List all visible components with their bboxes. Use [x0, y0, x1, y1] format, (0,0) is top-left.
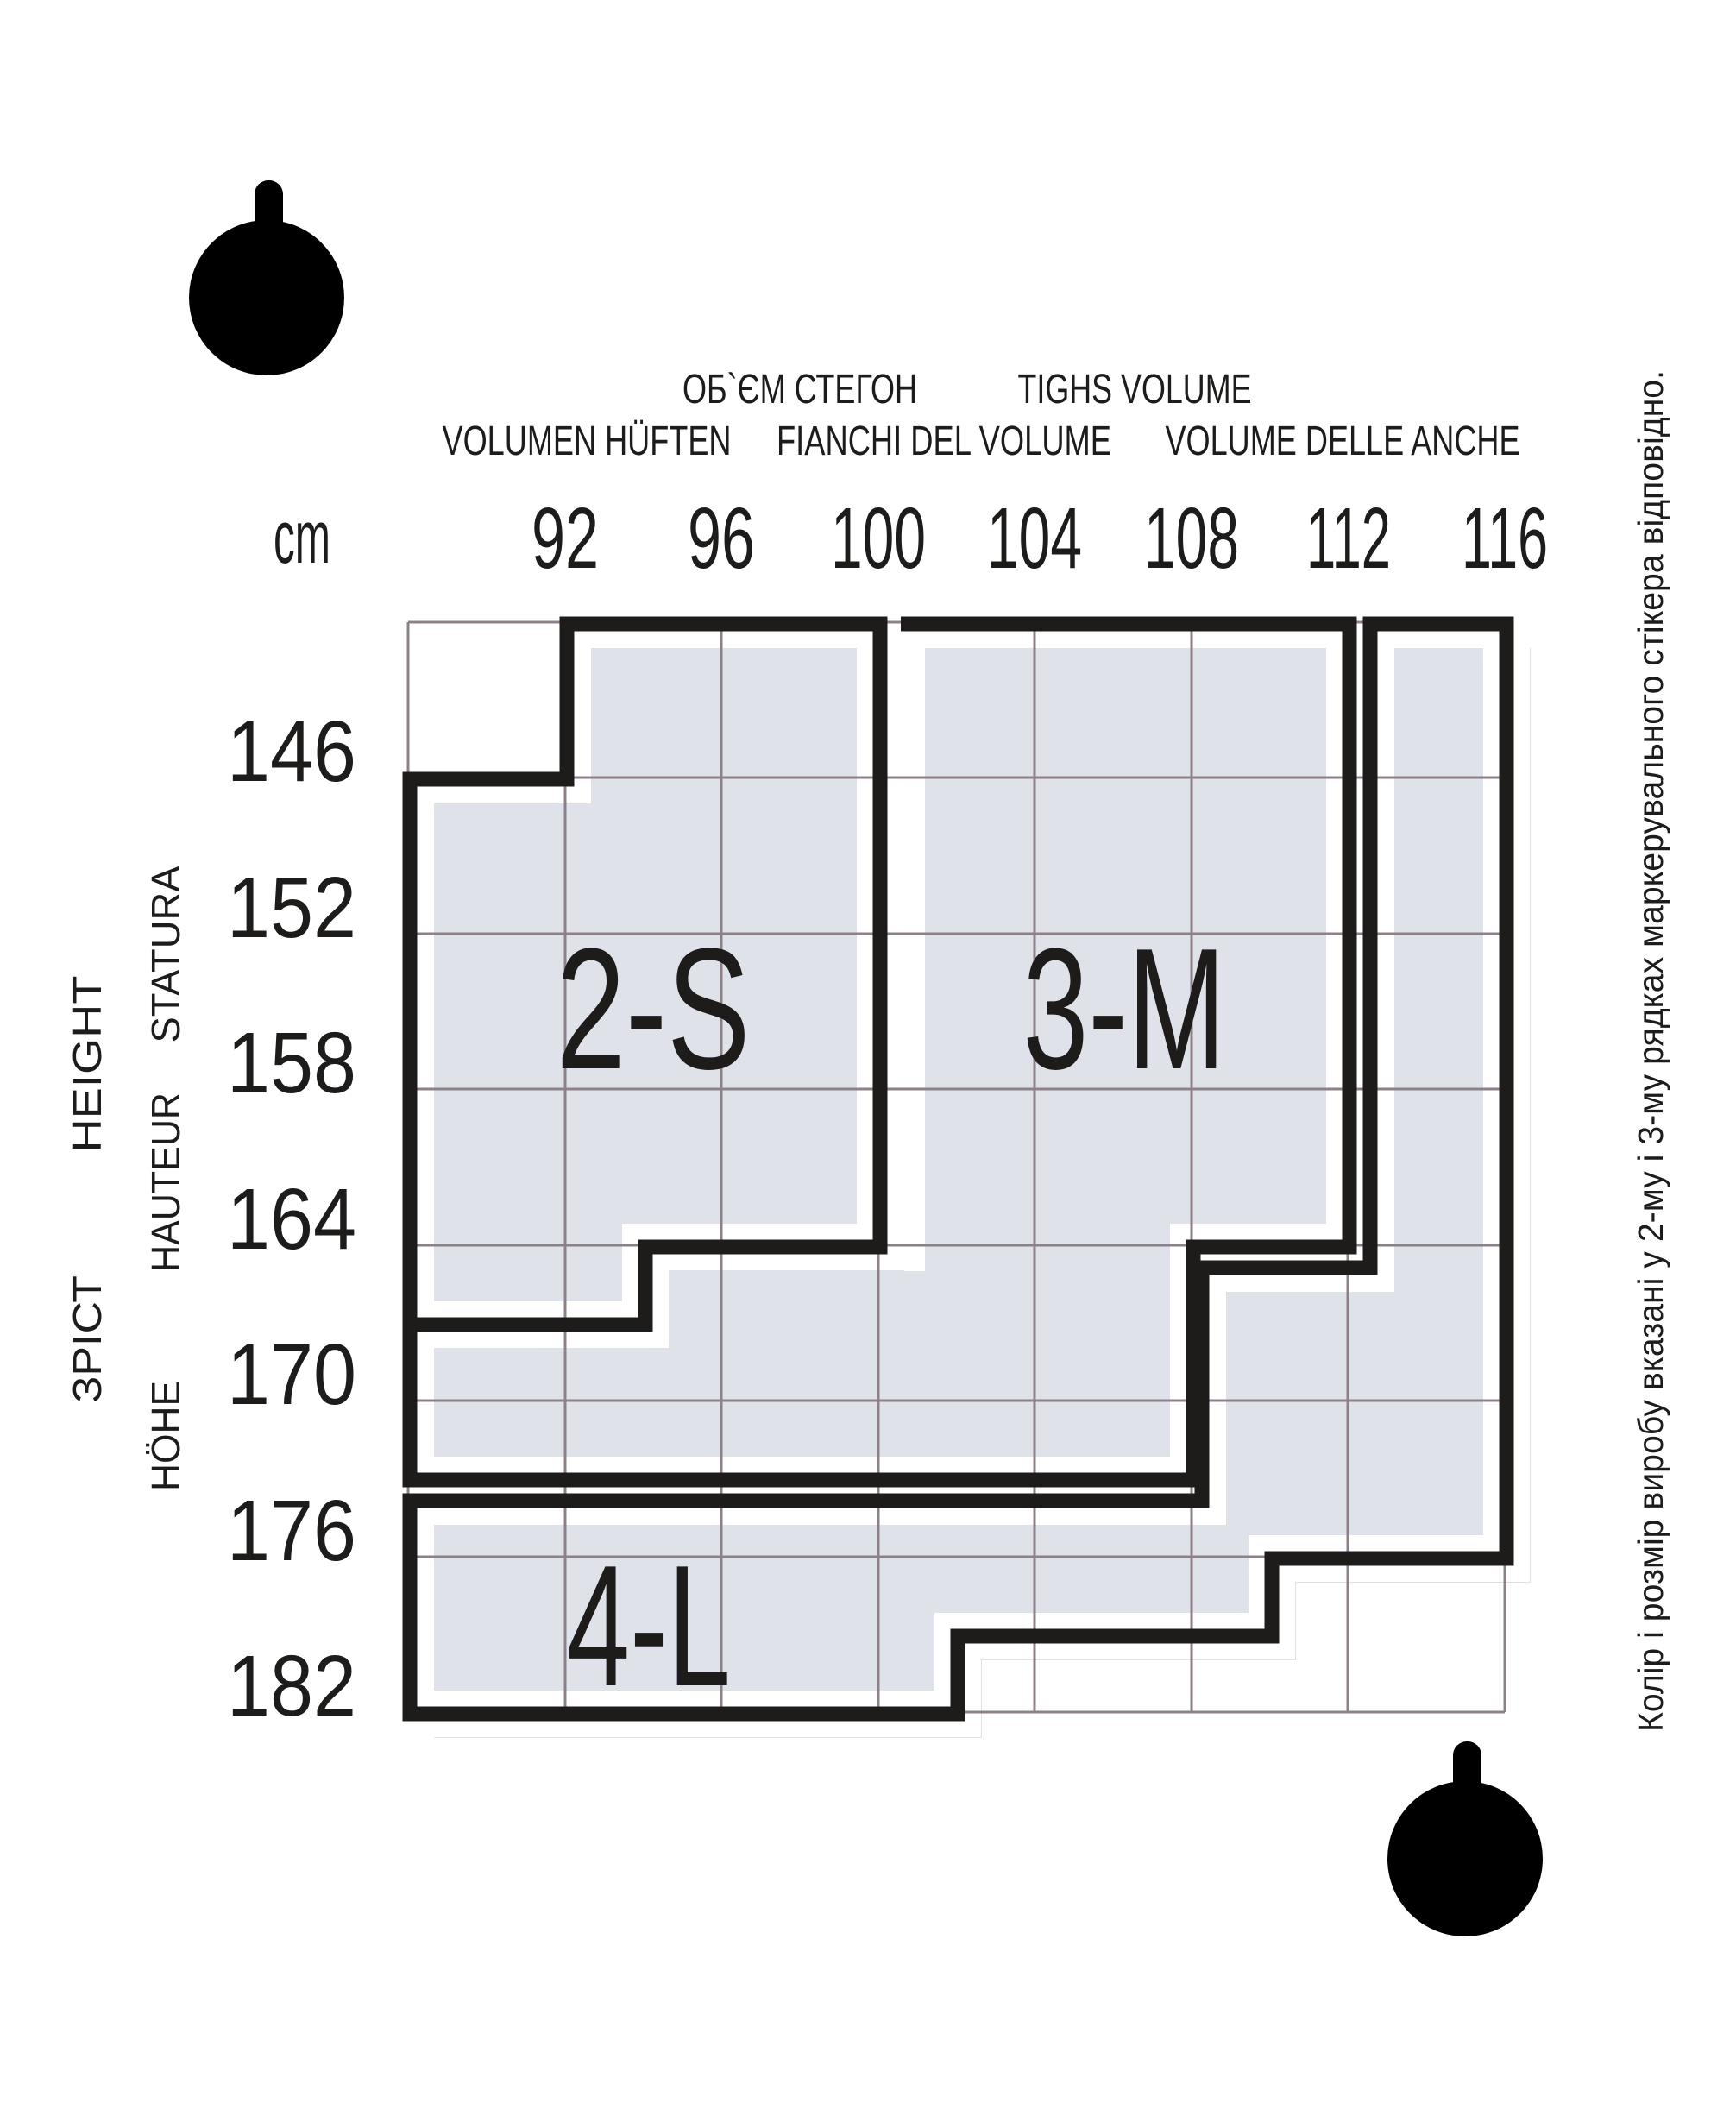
height-axis-tick: 152: [227, 859, 356, 956]
side-note: Колір і розмір виробу вказані у 2-му і 3…: [1631, 370, 1670, 1732]
height-title-de: HÖHE: [143, 1381, 188, 1491]
height-axis: 146 152 158 164 170 176 182: [227, 703, 356, 1735]
height-axis-tick: 182: [227, 1638, 356, 1735]
height-title-fr: HAUTEUR: [143, 1092, 188, 1272]
height-title-uk: ЗРІСТ: [65, 1275, 110, 1403]
height-title-it: STATURA: [143, 866, 188, 1042]
unit-label: cm: [274, 496, 330, 579]
height-axis-tick: 158: [227, 1015, 356, 1111]
zone-label-4l: 4-L: [567, 1530, 731, 1722]
hip-axis-tick: 104: [987, 490, 1082, 587]
hip-title-de: VOLUMEN HÜFTEN: [443, 419, 732, 464]
hip-axis-tick: 116: [1462, 490, 1548, 587]
brand-logo-icon: [1387, 1741, 1543, 1936]
hip-title-it: FIANCHI DEL VOLUME: [777, 419, 1111, 464]
hip-axis-tick: 108: [1144, 490, 1239, 587]
height-axis-tick: 164: [227, 1171, 356, 1268]
zone-label-2s: 2-S: [557, 913, 751, 1105]
hip-axis-tick: 112: [1306, 490, 1391, 587]
height-axis-titles: ЗРІСТ HEIGHT HÖHE HAUTEUR STATURA: [65, 866, 188, 1491]
height-axis-tick: 146: [227, 703, 356, 800]
height-axis-tick: 170: [227, 1326, 356, 1423]
size-chart-diagram: ОБ`ЄМ СТЕГОН TIGHS VOLUME VOLUMEN HÜFTEN…: [0, 0, 1736, 2103]
height-title-en: HEIGHT: [65, 976, 110, 1153]
hip-axis-tick: 92: [531, 490, 599, 587]
height-axis-tick: 176: [227, 1483, 356, 1579]
zone-label-3m: 3-M: [1023, 913, 1226, 1105]
hip-axis-tick: 96: [688, 490, 755, 587]
brand-logo-icon: [189, 180, 344, 375]
hip-axis-tick: 100: [831, 490, 926, 587]
hip-title-it2: VOLUME DELLE ANCHE: [1166, 419, 1520, 464]
size-chart-page: ОБ`ЄМ СТЕГОН TIGHS VOLUME VOLUMEN HÜFTEN…: [0, 0, 1736, 2103]
hip-title-uk: ОБ`ЄМ СТЕГОН: [682, 367, 917, 412]
hip-axis: 92 96 100 104 108 112 116: [531, 490, 1548, 587]
hip-title-en: TIGHS VOLUME: [1018, 367, 1252, 412]
